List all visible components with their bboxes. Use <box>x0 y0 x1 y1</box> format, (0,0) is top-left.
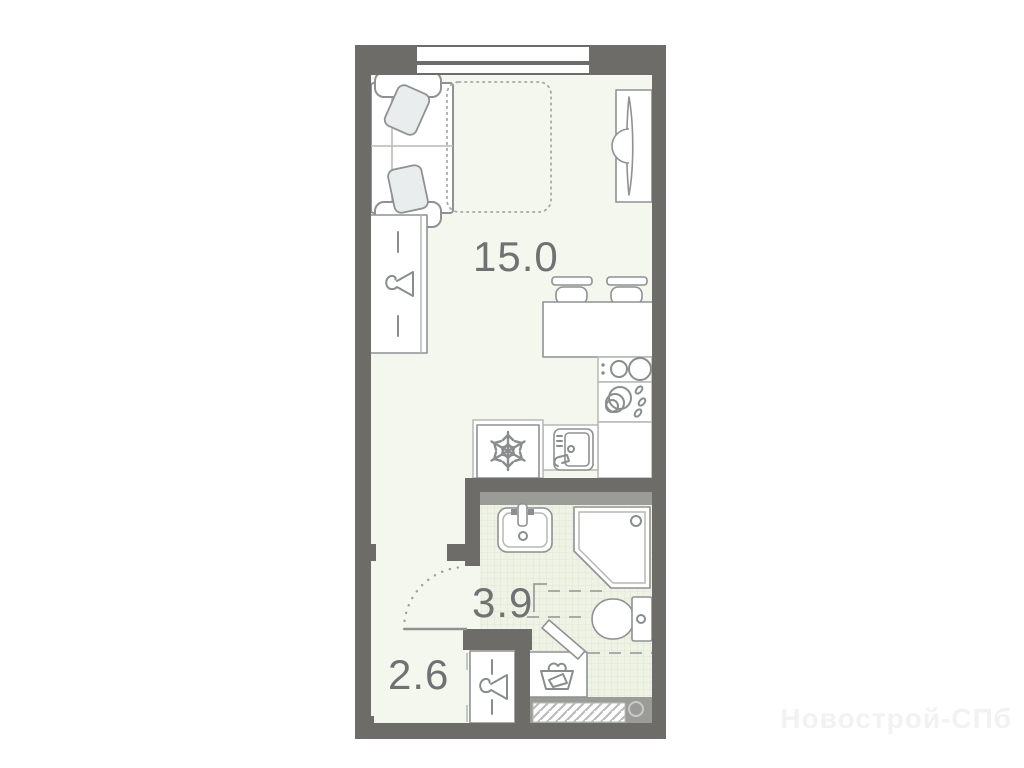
toilet-bowl <box>592 599 634 639</box>
stool-back <box>607 277 647 285</box>
watermark: Новострой-СПб <box>780 703 1012 735</box>
bathroom-wall-top <box>465 478 652 492</box>
tap <box>511 509 517 515</box>
floorplan-canvas: 15.0 3.9 2.6 Новострой-СПб <box>0 0 1024 768</box>
toilet-tank <box>632 597 652 641</box>
floorplan-svg: 15.0 3.9 2.6 <box>0 0 1024 768</box>
washbasin <box>498 504 552 552</box>
bathroom-wall-left <box>465 492 480 566</box>
exterior-wall-right <box>652 75 666 739</box>
room-label-bathroom: 3.9 <box>472 579 533 626</box>
toilet <box>592 597 652 641</box>
bathroom-wall-bottom-left <box>463 629 532 650</box>
hallway-closet <box>467 651 515 723</box>
wardrobe <box>369 215 427 353</box>
faucet-icon <box>518 504 527 526</box>
tap <box>528 509 534 515</box>
window <box>417 47 589 73</box>
exterior-wall-bottom <box>355 723 666 739</box>
stove-knob <box>601 371 604 374</box>
bathroom-duct-strip <box>480 492 652 505</box>
window-outer-pane <box>417 47 589 61</box>
wall-pilaster-left <box>355 544 376 561</box>
dining-table <box>543 302 653 357</box>
bar-stool <box>607 277 647 304</box>
kitchen-counter <box>598 422 652 478</box>
bathroom-door-stub <box>447 544 465 561</box>
closet-side-wall <box>515 650 530 723</box>
window-inner-pane <box>417 65 589 73</box>
kitchen-sink <box>554 429 593 470</box>
wall-corner-stub <box>355 716 374 739</box>
tv-unit <box>612 90 652 202</box>
sofa <box>371 72 453 227</box>
bar-stool <box>552 277 592 304</box>
exterior-wall-left <box>355 75 371 739</box>
entrance-door-hatch <box>533 703 625 722</box>
stove-knob <box>601 363 604 366</box>
room-label-hallway: 2.6 <box>388 651 449 698</box>
room-label-living: 15.0 <box>473 233 559 280</box>
